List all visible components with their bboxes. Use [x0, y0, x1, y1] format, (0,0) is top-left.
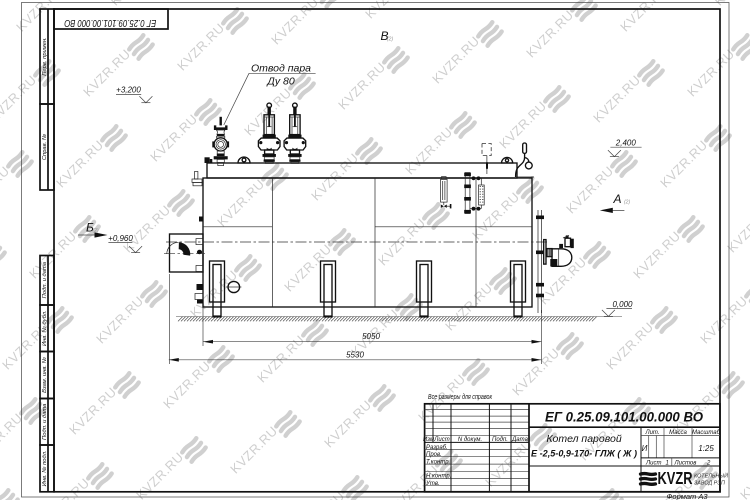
svg-text:И: И: [642, 444, 648, 453]
svg-text:Котел паровой: Котел паровой: [546, 433, 621, 445]
svg-text:Масса: Масса: [669, 430, 687, 436]
svg-text:Масштаб: Масштаб: [692, 430, 721, 436]
svg-text:0,000: 0,000: [612, 300, 633, 309]
svg-text:Т.контр.: Т.контр.: [426, 459, 450, 465]
svg-text:ЗАВОД РЭП: ЗАВОД РЭП: [694, 481, 725, 487]
svg-text:Формат А3: Формат А3: [666, 492, 708, 500]
svg-text:Все размеры для справок: Все размеры для справок: [428, 392, 492, 401]
svg-text:(2): (2): [387, 37, 393, 43]
svg-text:2: 2: [706, 460, 711, 466]
svg-text:2,400: 2,400: [615, 138, 637, 147]
svg-text:Дата: Дата: [511, 437, 528, 443]
svg-text:ЕГ 0.25.09.101.00.000 ВО: ЕГ 0.25.09.101.00.000 ВО: [64, 17, 156, 28]
svg-text:Отвод пара: Отвод пара: [251, 63, 311, 75]
svg-text:Лит.: Лит.: [644, 430, 659, 436]
svg-text:Разраб.: Разраб.: [426, 445, 448, 451]
svg-text:5530: 5530: [346, 350, 364, 359]
svg-text:+3,200: +3,200: [116, 86, 141, 95]
svg-text:Справ. №: Справ. №: [42, 134, 48, 160]
svg-text:1:25: 1:25: [698, 444, 714, 453]
svg-text:Утв.: Утв.: [425, 481, 440, 487]
svg-text:Перв. примен.: Перв. примен.: [42, 37, 48, 76]
svg-text:Е -2,5-0,9-170- ГЛЖ ( Ж ): Е -2,5-0,9-170- ГЛЖ ( Ж ): [531, 449, 637, 460]
svg-text:Подп.: Подп.: [492, 437, 508, 443]
svg-text:Пров.: Пров.: [426, 452, 442, 458]
svg-text:1: 1: [666, 460, 669, 466]
svg-text:Ду 80: Ду 80: [266, 76, 295, 88]
svg-text:Подп. и дата: Подп. и дата: [42, 261, 48, 298]
svg-text:ЕГ 0.25.09.101.00.000 ВО: ЕГ 0.25.09.101.00.000 ВО: [545, 409, 703, 425]
svg-text:+0,960: +0,960: [108, 234, 133, 243]
svg-text:Лист: Лист: [433, 437, 449, 443]
svg-text:Н.контр.: Н.контр.: [426, 474, 451, 480]
svg-text:5050: 5050: [362, 332, 380, 341]
svg-text:Инв. № дубл.: Инв. № дубл.: [42, 310, 48, 346]
svg-text:Взам. инв. №: Взам. инв. №: [42, 357, 48, 393]
svg-text:Изм: Изм: [423, 437, 434, 443]
svg-text:Подп. и дата: Подп. и дата: [42, 403, 48, 440]
svg-text:Лист: Лист: [645, 460, 661, 466]
svg-text:Инв. № подл.: Инв. № подл.: [42, 450, 48, 486]
svg-text:KVZR: KVZR: [658, 468, 693, 488]
svg-text:КОТЕЛЬНЫЙ: КОТЕЛЬНЫЙ: [694, 472, 728, 480]
svg-text:А: А: [613, 192, 622, 206]
svg-text:N докум.: N докум.: [458, 437, 482, 443]
svg-text:Листов: Листов: [674, 460, 697, 466]
svg-text:(2): (2): [624, 200, 630, 206]
